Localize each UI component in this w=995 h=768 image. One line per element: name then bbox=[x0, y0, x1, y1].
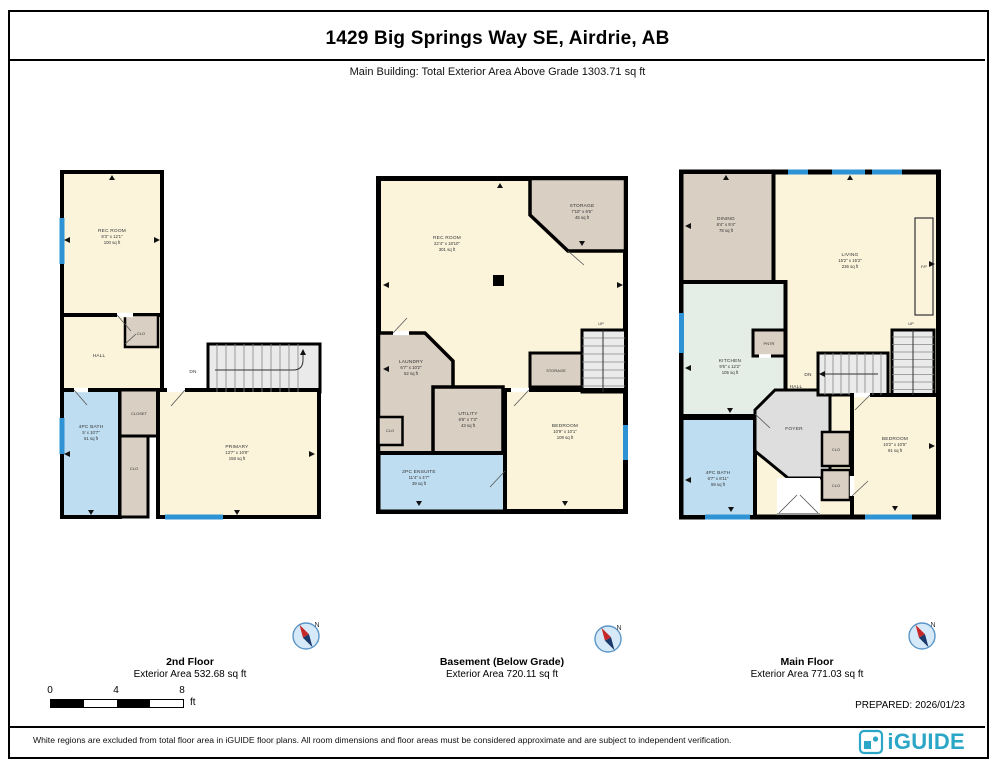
room-label: HALL bbox=[93, 353, 106, 359]
room-label: CLOSET bbox=[131, 411, 148, 416]
room-area: 109 sq ft bbox=[557, 435, 574, 440]
compass-icon: N bbox=[288, 618, 324, 654]
floor-area: Exterior Area 771.03 sq ft bbox=[751, 669, 864, 680]
room-area: 43 sq ft bbox=[461, 423, 476, 428]
room-dims: 6'6" x 7'3" bbox=[459, 417, 478, 422]
room-dims: 22'4" x 18'10" bbox=[434, 241, 460, 246]
stairs-label: DN bbox=[804, 372, 812, 378]
room-label: CLO bbox=[832, 483, 840, 488]
caption-basement: Basement (Below Grade) Exterior Area 720… bbox=[440, 656, 564, 680]
scale-unit: ft bbox=[190, 697, 196, 708]
entry-vestibule bbox=[777, 478, 820, 515]
room-dims: 7'10" x 6'6" bbox=[571, 209, 593, 214]
floor-name: Basement (Below Grade) bbox=[440, 656, 564, 668]
scale-tick-4: 4 bbox=[113, 685, 119, 696]
stairs-up bbox=[582, 330, 626, 392]
room-dims: 6'7" x 8'11" bbox=[708, 476, 729, 481]
compass-north-label: N bbox=[314, 622, 319, 629]
room-label: CLO bbox=[832, 447, 840, 452]
header-divider bbox=[10, 59, 985, 61]
iguide-logo: iGUIDE bbox=[858, 729, 965, 755]
compass-icon: N bbox=[904, 618, 940, 654]
disclaimer-text: White regions are excluded from total fl… bbox=[33, 735, 731, 745]
floorplan-2nd-floor: REC ROOM 8'3" x 12'1" 100 sq ft HALL CLO… bbox=[57, 168, 327, 520]
floorplan-page: 1429 Big Springs Way SE, Airdrie, AB Mai… bbox=[0, 0, 995, 768]
iguide-logo-text: iGUIDE bbox=[887, 729, 965, 755]
room-area: 105 sq ft bbox=[722, 370, 739, 375]
window bbox=[788, 170, 808, 175]
window bbox=[60, 418, 65, 454]
floorplan-main-floor: DINING 8'4" x 9'4" 78 sq ft LIVING 15'2"… bbox=[678, 168, 942, 520]
compass-north-label: N bbox=[930, 622, 935, 629]
floor-area: Exterior Area 720.11 sq ft bbox=[440, 669, 564, 680]
room-area: 78 sq ft bbox=[719, 228, 734, 233]
windows bbox=[623, 425, 628, 460]
window bbox=[865, 515, 912, 520]
room-clo bbox=[120, 436, 148, 517]
room-area: 158 sq ft bbox=[229, 456, 246, 461]
room-dims: 10'2" x 10'5" bbox=[883, 442, 907, 447]
page-title: 1429 Big Springs Way SE, Airdrie, AB bbox=[0, 28, 995, 50]
room-label: CLO bbox=[130, 466, 138, 471]
compass-north-label: N bbox=[616, 625, 621, 632]
room-area: 100 sq ft bbox=[104, 240, 121, 245]
scale-bar bbox=[50, 699, 184, 708]
compass-icon: N bbox=[590, 621, 626, 657]
room-dims: 8'3" x 12'1" bbox=[101, 234, 123, 239]
room-area: 51 sq ft bbox=[84, 436, 99, 441]
scale-tick-8: 8 bbox=[179, 685, 185, 696]
room-4pc-bath-main bbox=[682, 418, 756, 517]
room-dims: 9'6" x 12'2" bbox=[719, 364, 741, 369]
window bbox=[623, 425, 628, 460]
room-area: 52 sq ft bbox=[404, 371, 419, 376]
room-dims: 11'4" x 4'7" bbox=[409, 475, 430, 480]
rooms-basement bbox=[379, 179, 626, 512]
floor-area: Exterior Area 532.68 sq ft bbox=[134, 669, 247, 680]
room-area: 301 sq ft bbox=[439, 247, 456, 252]
room-4pc-bath bbox=[62, 390, 120, 517]
room-area: 45 sq ft bbox=[575, 215, 590, 220]
caption-main-floor: Main Floor Exterior Area 771.03 sq ft bbox=[751, 656, 864, 680]
floor-name: 2nd Floor bbox=[134, 656, 247, 668]
room-2pc-ensuite bbox=[379, 453, 506, 512]
room-label: CLO bbox=[386, 428, 394, 433]
room-area: 236 sq ft bbox=[842, 264, 859, 269]
scale-tick-0: 0 bbox=[47, 685, 53, 696]
floor-name: Main Floor bbox=[751, 656, 864, 668]
stairs-label: UP bbox=[908, 321, 914, 326]
room-dims: 13'7" x 10'9" bbox=[225, 450, 249, 455]
floorplan-basement: REC ROOM 22'4" x 18'10" 301 sq ft STORAG… bbox=[375, 175, 629, 515]
room-label: PNTR bbox=[764, 341, 775, 346]
prepared-date: PREPARED: 2026/01/23 bbox=[855, 700, 965, 711]
window bbox=[872, 170, 902, 175]
room-dining bbox=[682, 172, 774, 282]
window bbox=[705, 515, 750, 520]
page-subtitle: Main Building: Total Exterior Area Above… bbox=[0, 66, 995, 78]
room-area: 91 sq ft bbox=[888, 448, 903, 453]
room-label: STORAGE bbox=[546, 368, 566, 373]
room-area: 39 sq ft bbox=[412, 481, 427, 486]
room-dims: 10'9" x 10'1" bbox=[553, 429, 577, 434]
room-dims: 5' x 10'7" bbox=[82, 430, 100, 435]
iguide-logo-icon bbox=[858, 729, 884, 755]
room-label: CLO bbox=[137, 331, 145, 336]
stairs-label: UP bbox=[598, 321, 604, 326]
rooms-2nd-floor bbox=[62, 172, 320, 517]
room-label: FOYER bbox=[785, 426, 803, 432]
window bbox=[165, 515, 223, 520]
room-area: 59 sq ft bbox=[711, 482, 726, 487]
window bbox=[832, 170, 865, 175]
window bbox=[60, 218, 65, 264]
room-dims: 15'2" x 15'2" bbox=[838, 258, 862, 263]
caption-2nd-floor: 2nd Floor Exterior Area 532.68 sq ft bbox=[134, 656, 247, 680]
stairs-label: DN bbox=[189, 369, 197, 375]
room-dims: 6'7" x 10'2" bbox=[400, 365, 422, 370]
support-column bbox=[493, 275, 504, 286]
footer-divider bbox=[10, 726, 985, 728]
window bbox=[679, 313, 684, 353]
fireplace-label: F/P bbox=[921, 264, 928, 269]
room-label: HALL bbox=[790, 384, 803, 390]
room-dims: 8'4" x 9'4" bbox=[717, 222, 736, 227]
